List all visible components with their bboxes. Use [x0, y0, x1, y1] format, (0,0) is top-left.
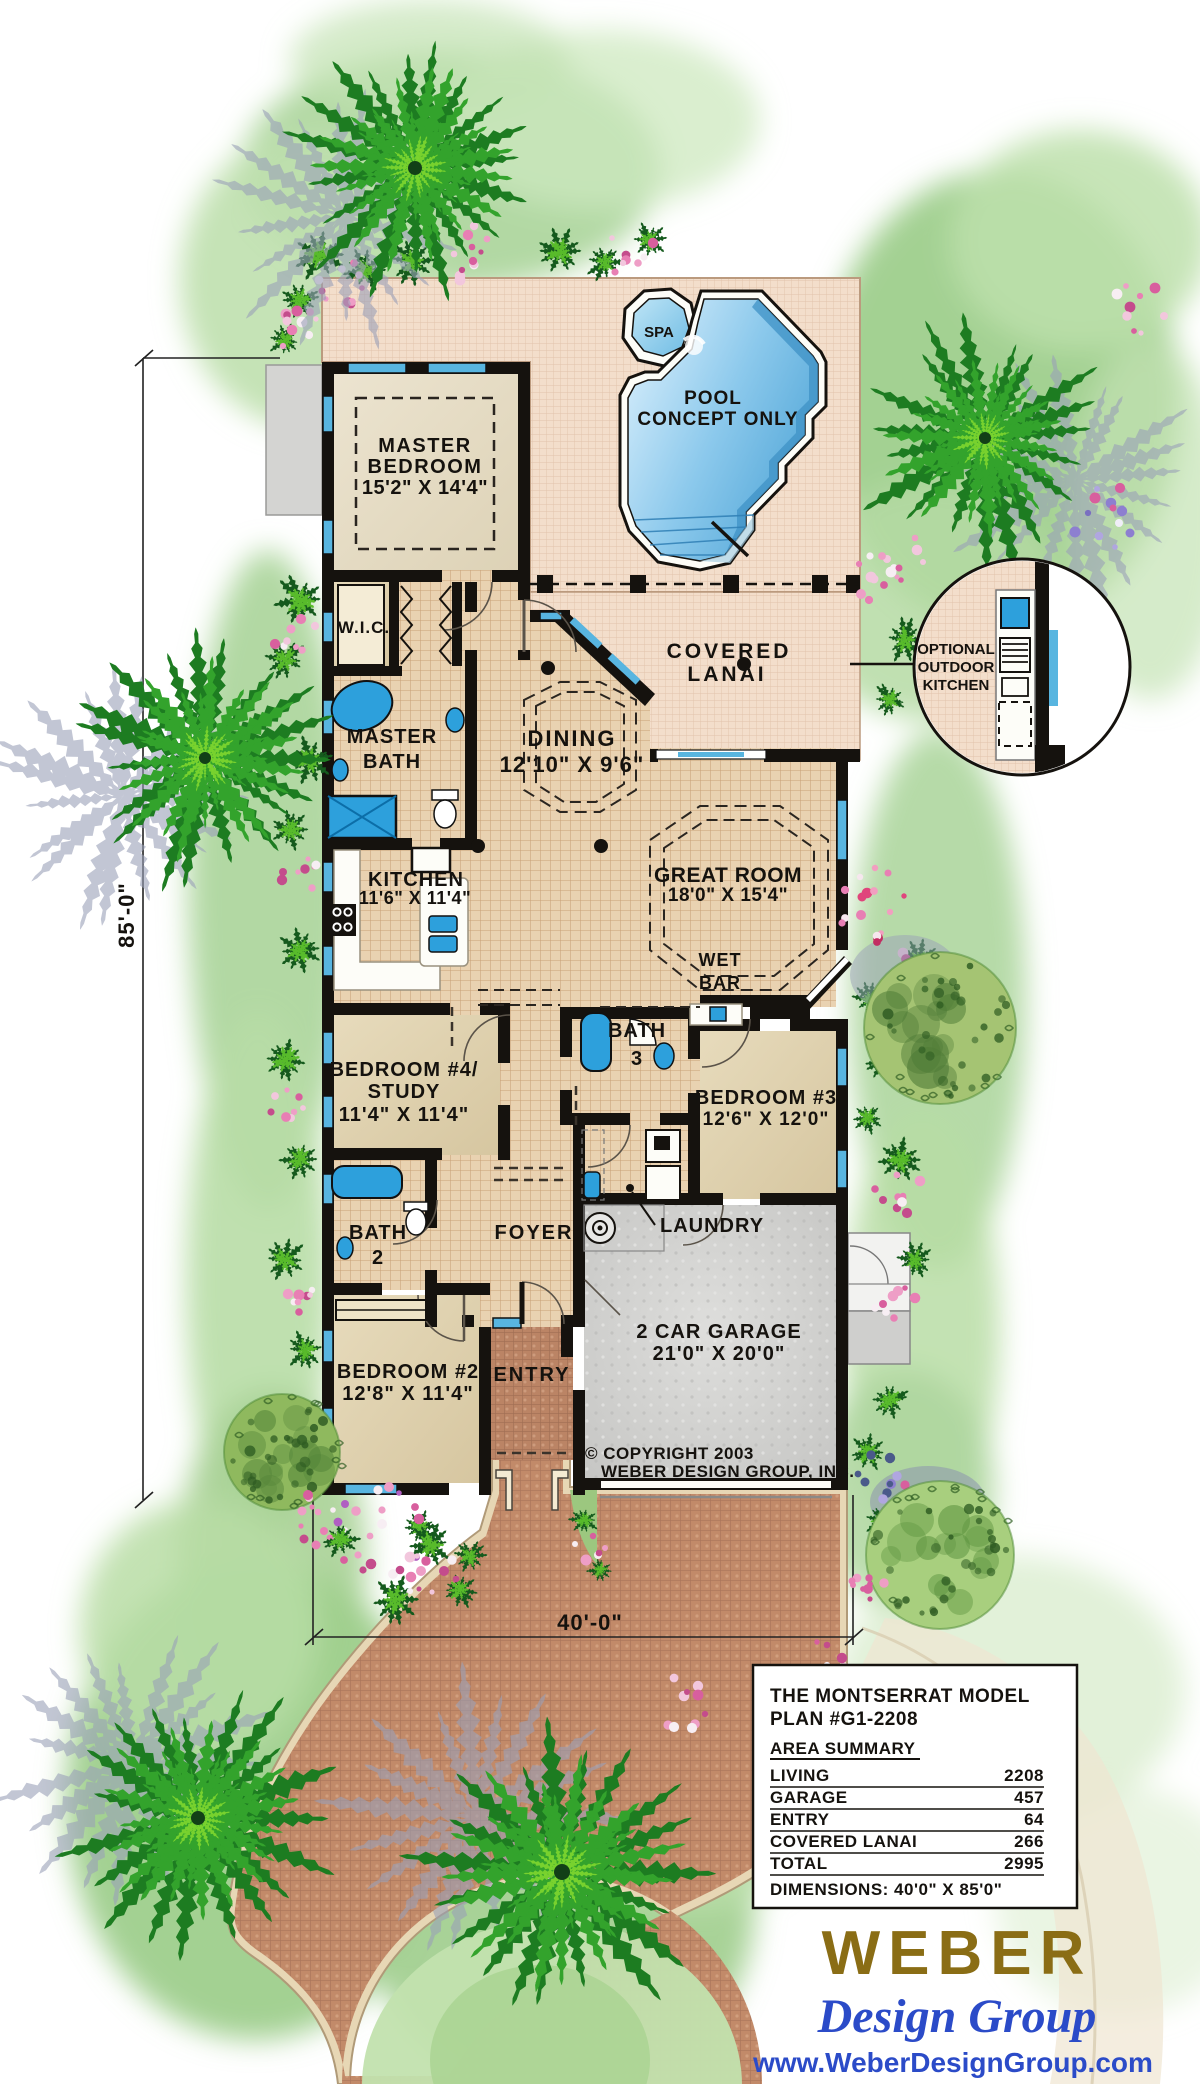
svg-text:© COPYRIGHT 2003: © COPYRIGHT 2003 [585, 1444, 754, 1463]
svg-text:LANAI: LANAI [687, 663, 766, 686]
svg-text:W.I.C.: W.I.C. [338, 618, 390, 637]
svg-text:POOL: POOL [684, 388, 742, 409]
svg-text:BATH: BATH [349, 1222, 407, 1244]
svg-text:GREAT ROOM: GREAT ROOM [654, 864, 802, 887]
svg-text:12'6" X 12'0": 12'6" X 12'0" [703, 1109, 830, 1130]
svg-text:40'-0": 40'-0" [557, 1610, 623, 1635]
svg-text:OUTDOOR: OUTDOOR [918, 659, 995, 676]
svg-text:ENTRY: ENTRY [770, 1810, 830, 1829]
svg-text:SPA: SPA [644, 324, 674, 341]
svg-text:BATH: BATH [608, 1020, 666, 1042]
svg-text:11'6" X 11'4": 11'6" X 11'4" [359, 888, 471, 908]
svg-text:2995: 2995 [1004, 1854, 1044, 1873]
svg-text:18'0" X 15'4": 18'0" X 15'4" [668, 885, 788, 906]
svg-text:2 CAR GARAGE: 2 CAR GARAGE [636, 1321, 801, 1343]
svg-text:2208: 2208 [1004, 1766, 1044, 1785]
svg-text:LIVING: LIVING [770, 1766, 830, 1785]
svg-text:15'2" X 14'4": 15'2" X 14'4" [362, 477, 488, 499]
svg-text:DIMENSIONS: 40'0" X 85'0": DIMENSIONS: 40'0" X 85'0" [770, 1880, 1002, 1899]
svg-text:85'-0": 85'-0" [114, 882, 139, 948]
svg-text:BEDROOM #2: BEDROOM #2 [337, 1361, 479, 1383]
svg-text:CONCEPT ONLY: CONCEPT ONLY [637, 409, 798, 430]
svg-text:FOYER: FOYER [495, 1222, 574, 1244]
svg-text:Design Group: Design Group [817, 1990, 1097, 2043]
svg-text:457: 457 [1014, 1788, 1044, 1807]
svg-text:MASTER: MASTER [378, 435, 471, 457]
svg-text:MASTER: MASTER [347, 726, 437, 748]
svg-text:PLAN #G1-2208: PLAN #G1-2208 [770, 1709, 918, 1730]
svg-text:12'8" X 11'4": 12'8" X 11'4" [342, 1383, 474, 1405]
svg-text:STUDY: STUDY [368, 1081, 441, 1103]
svg-text:BEDROOM #3: BEDROOM #3 [695, 1087, 837, 1109]
svg-text:KITCHEN: KITCHEN [923, 677, 990, 694]
svg-text:64: 64 [1024, 1810, 1044, 1829]
svg-text:BEDROOM #4/: BEDROOM #4/ [330, 1059, 479, 1081]
svg-text:WET: WET [699, 950, 742, 970]
svg-text:21'0" X 20'0": 21'0" X 20'0" [653, 1343, 786, 1365]
svg-text:BEDROOM: BEDROOM [368, 456, 483, 478]
svg-text:THE MONTSERRAT MODEL: THE MONTSERRAT MODEL [770, 1686, 1030, 1707]
svg-text:3: 3 [631, 1048, 643, 1070]
svg-text:DINING: DINING [528, 726, 617, 751]
svg-text:TOTAL: TOTAL [770, 1854, 828, 1873]
svg-text:BATH: BATH [363, 751, 421, 773]
svg-text:www.WeberDesignGroup.com: www.WeberDesignGroup.com [752, 2047, 1153, 2078]
svg-text:COVERED LANAI: COVERED LANAI [770, 1832, 917, 1851]
svg-text:COVERED: COVERED [667, 640, 792, 663]
svg-text:GARAGE: GARAGE [770, 1788, 848, 1807]
svg-text:2: 2 [372, 1247, 384, 1269]
svg-text:OPTIONAL: OPTIONAL [917, 641, 995, 658]
svg-text:266: 266 [1014, 1832, 1044, 1851]
svg-text:LAUNDRY: LAUNDRY [660, 1215, 764, 1237]
svg-text:ENTRY: ENTRY [493, 1364, 570, 1386]
svg-text:AREA SUMMARY: AREA SUMMARY [770, 1739, 916, 1758]
svg-text:12'10" X 9'6": 12'10" X 9'6" [500, 752, 645, 777]
svg-text:WEBER DESIGN GROUP, INC.: WEBER DESIGN GROUP, INC. [601, 1462, 855, 1481]
svg-text:WEBER: WEBER [822, 1919, 1093, 1988]
svg-text:BAR: BAR [699, 973, 741, 993]
svg-text:11'4" X 11'4": 11'4" X 11'4" [339, 1104, 469, 1126]
